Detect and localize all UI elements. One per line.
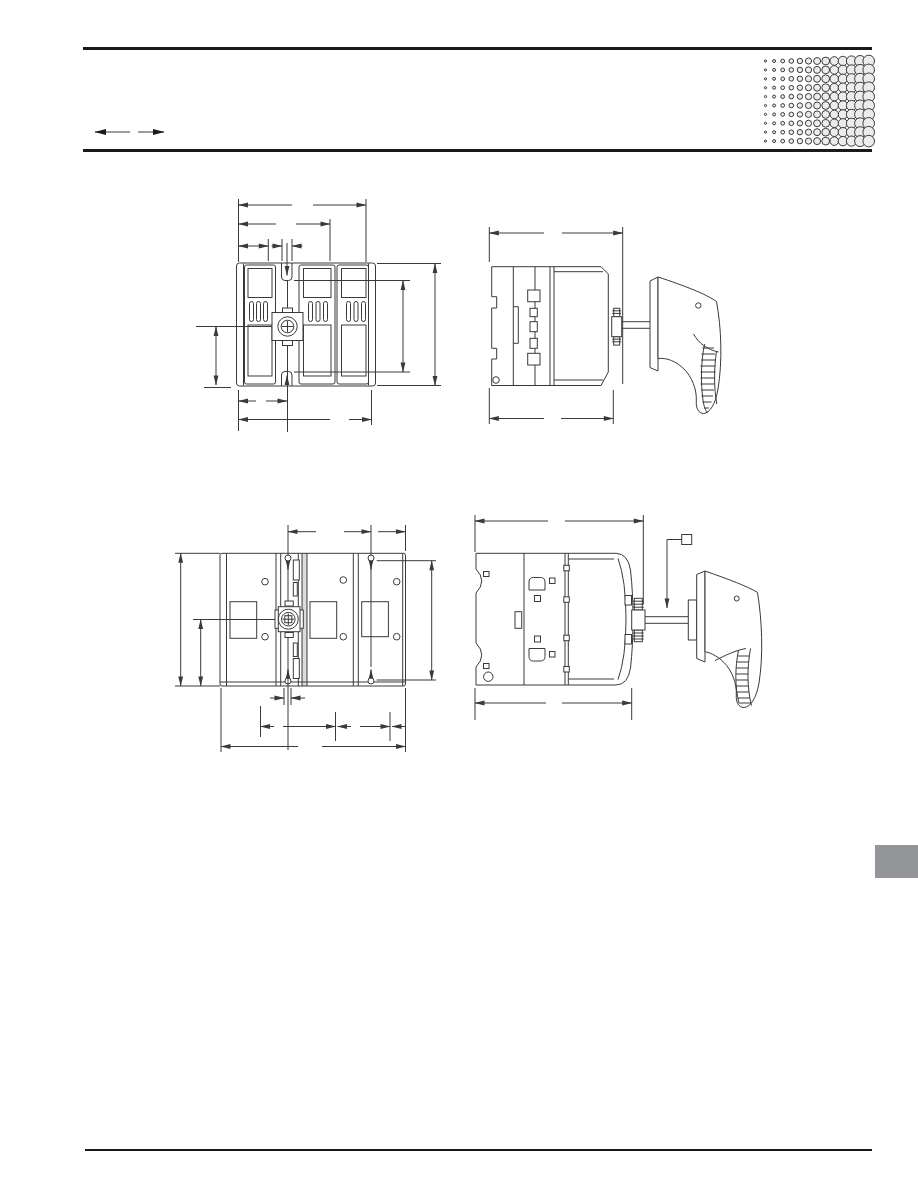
operating-handle bbox=[705, 571, 762, 708]
figure-front-view bbox=[170, 195, 450, 440]
halftone-dots-decoration bbox=[758, 54, 878, 152]
page-edge-tab bbox=[875, 845, 918, 878]
document-page bbox=[0, 0, 918, 1188]
pagination-arrows bbox=[85, 120, 185, 144]
operating-handle bbox=[658, 277, 721, 414]
figure-side-view-2 bbox=[458, 510, 770, 722]
header-top-rule bbox=[83, 47, 872, 50]
footer-rule bbox=[85, 1149, 872, 1151]
figure-back-view bbox=[165, 515, 455, 760]
figure-side-view bbox=[455, 218, 755, 433]
header-bottom-rule bbox=[83, 149, 872, 152]
square-callout-symbol bbox=[682, 535, 692, 545]
